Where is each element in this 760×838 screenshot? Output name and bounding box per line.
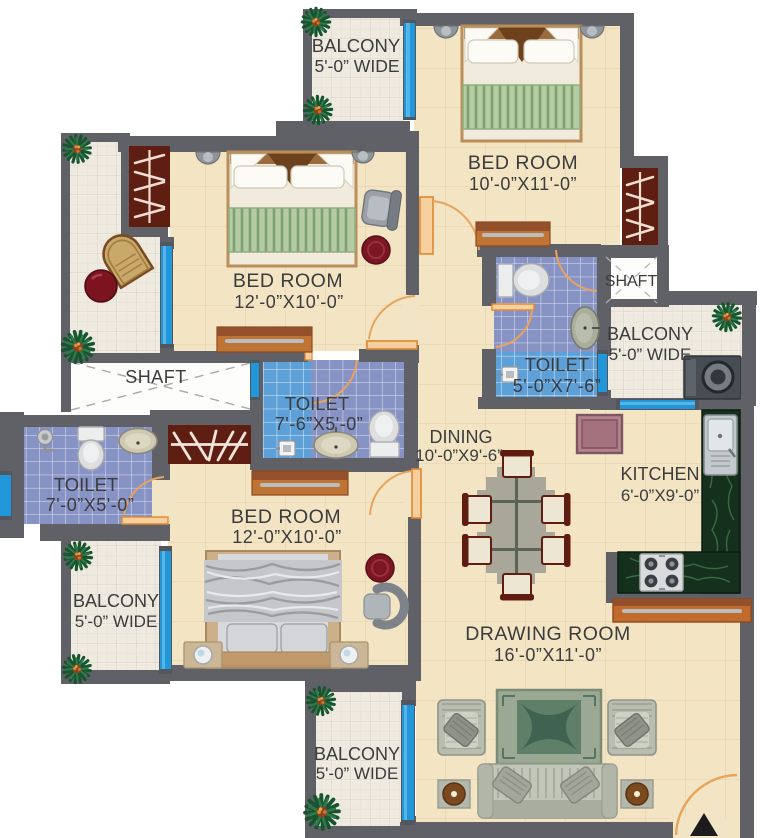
svg-text:BALCONY: BALCONY xyxy=(312,35,400,56)
svg-text:TOILET: TOILET xyxy=(54,474,118,495)
svg-text:KITCHEN: KITCHEN xyxy=(620,464,699,484)
svg-text:BALCONY: BALCONY xyxy=(314,744,400,764)
svg-text:DINING: DINING xyxy=(430,427,493,447)
svg-text:5'-0” WIDE: 5'-0” WIDE xyxy=(75,612,158,631)
svg-text:BALCONY: BALCONY xyxy=(73,591,159,611)
svg-text:SHAFT: SHAFT xyxy=(605,273,658,290)
svg-text:5'-0” WIDE: 5'-0” WIDE xyxy=(314,56,399,76)
svg-text:10'-0”X9'-6”: 10'-0”X9'-6” xyxy=(415,446,503,465)
svg-text:DRAWING ROOM: DRAWING ROOM xyxy=(465,623,631,645)
svg-text:12'-0”X10'-0”: 12'-0”X10'-0” xyxy=(234,292,343,312)
svg-text:TOILET: TOILET xyxy=(525,354,589,375)
svg-text:6'-0”X9'-0”: 6'-0”X9'-0” xyxy=(621,486,700,505)
svg-text:5'-0”X7'-6”: 5'-0”X7'-6” xyxy=(513,376,601,396)
svg-text:BED ROOM: BED ROOM xyxy=(233,270,343,292)
svg-text:5'-0” WIDE: 5'-0” WIDE xyxy=(609,345,692,364)
svg-text:5'-0” WIDE: 5'-0” WIDE xyxy=(316,764,399,783)
svg-text:TOILET: TOILET xyxy=(285,393,349,414)
svg-text:10'-0”X11'-0”: 10'-0”X11'-0” xyxy=(469,174,577,194)
svg-text:BALCONY: BALCONY xyxy=(607,324,693,344)
svg-text:BED ROOM: BED ROOM xyxy=(231,506,341,528)
svg-text:BED ROOM: BED ROOM xyxy=(468,152,578,174)
svg-text:SHAFT: SHAFT xyxy=(125,367,187,387)
svg-text:16'-0”X11'-0”: 16'-0”X11'-0” xyxy=(494,645,602,665)
svg-text:7'-0”X5'-0”: 7'-0”X5'-0” xyxy=(46,495,134,515)
svg-text:7'-6”X5'-0”: 7'-6”X5'-0” xyxy=(275,414,363,434)
svg-text:12'-0”X10'-0”: 12'-0”X10'-0” xyxy=(232,527,341,547)
